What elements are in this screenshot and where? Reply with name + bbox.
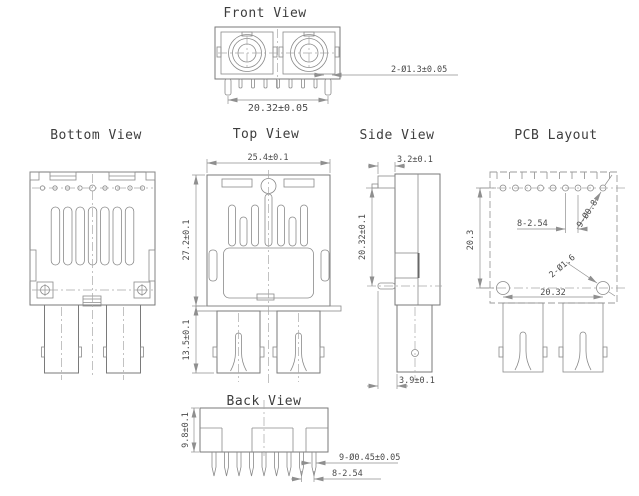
pcb-big-holes-label: 2-Ø1.6 [547,252,578,280]
bottom-centerlines [32,174,153,380]
pcb-legs [499,303,607,372]
side-flange-label: 3.2±0.1 [397,155,433,165]
side-dim-leg-offset: 3.9±0.1 [367,291,435,389]
side-height-label: 20.32±0.1 [358,214,368,260]
back-view: Back View 9.8±0.1 [181,394,400,482]
front-view-title: Front View [223,6,306,21]
back-height-label: 9.8±0.1 [181,412,191,448]
front-dim-pin-dia: 2-Ø1.3±0.05 [314,64,458,75]
front-view: Front View [215,6,458,114]
pcb-span-label: 20.32 [540,288,566,298]
back-pitch-label: 8-2.54 [332,469,363,479]
pcb-pitch-label: 8-2.54 [517,219,548,229]
back-pin-dia-label: 9-Ø0.45±0.05 [339,452,400,463]
back-dim-height: 9.8±0.1 [181,408,199,452]
side-dim-height: 20.32±0.1 [358,188,378,286]
front-dim-pin-span: 20.32±0.05 [228,96,328,114]
side-view: Side View 3.2±0.1 20.32± [358,128,442,389]
top-body-height-label: 27.2±0.1 [182,220,192,261]
top-leg-height-label: 13.5±0.1 [182,320,192,361]
side-view-title: Side View [360,128,435,143]
pcb-layout-view: PCB Layout [466,128,625,372]
front-pin-dia-label: 2-Ø1.3±0.05 [391,64,447,75]
side-body [372,174,440,305]
side-dim-flange: 3.2±0.1 [368,155,433,174]
top-centerlines [239,170,299,385]
side-leg [397,305,432,372]
front-pin-span-label: 20.32±0.05 [248,103,308,114]
pcb-dim-row-gap: 20.3 [466,188,496,288]
pcb-row-gap-label: 20.3 [466,230,476,250]
pcb-layout-title: PCB Layout [514,128,597,143]
drawing-sheet: Front View [0,0,639,496]
bottom-view-title: Bottom View [50,128,142,143]
pcb-dim-pitch: 8-2.54 [517,193,586,233]
top-view-title: Top View [233,127,300,142]
front-pins [225,79,331,95]
pcb-dim-small-holes: 9-Ø0.8 [574,175,612,230]
bottom-view: Bottom View [30,128,155,380]
top-width-label: 25.4±0.1 [248,153,289,163]
top-view: Top View 25.4±0.1 [182,127,341,385]
technical-drawing: Front View [0,0,639,496]
back-dim-pitch: 8-2.54 [291,469,381,482]
side-leg-offset-label: 3.9±0.1 [399,376,435,386]
pcb-dim-span: 20.32 [503,288,603,298]
